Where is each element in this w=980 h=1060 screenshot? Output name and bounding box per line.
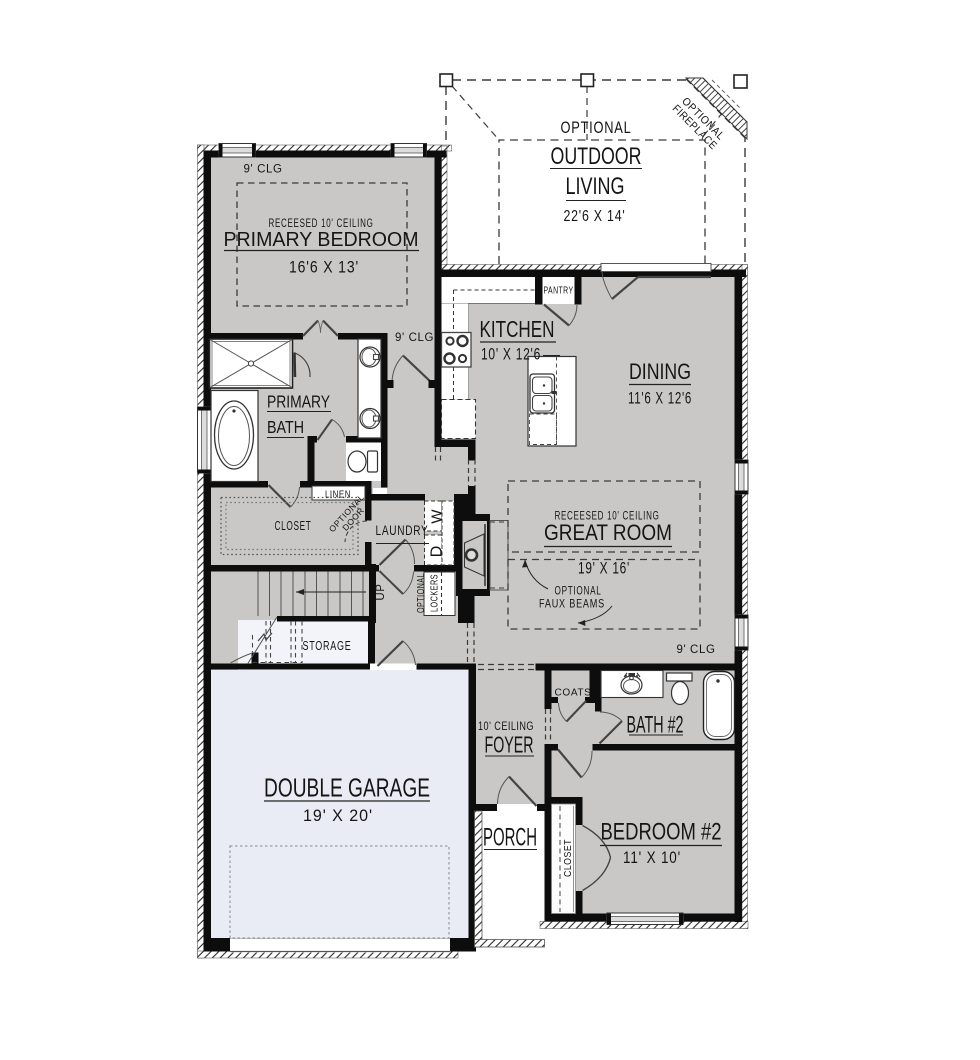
svg-text:DINING: DINING [629, 359, 691, 384]
svg-text:CLOSET: CLOSET [562, 839, 574, 877]
svg-text:LAUNDRY: LAUNDRY [376, 522, 429, 538]
svg-text:LIVING: LIVING [566, 173, 625, 200]
svg-text:OUTDOOR: OUTDOOR [551, 143, 642, 170]
svg-text:9' CLG: 9' CLG [395, 332, 434, 344]
svg-text:PORCH: PORCH [483, 824, 537, 852]
svg-text:OPTIONAL: OPTIONAL [555, 586, 602, 598]
svg-text:11'6 X 12'6: 11'6 X 12'6 [628, 390, 692, 408]
svg-text:CLOSET: CLOSET [275, 519, 312, 533]
svg-text:UP: UP [375, 583, 387, 600]
svg-text:10' X 12'6: 10' X 12'6 [481, 346, 541, 364]
svg-text:PRIMARY BEDROOM: PRIMARY BEDROOM [224, 229, 419, 251]
svg-text:OPTIONAL: OPTIONAL [561, 118, 632, 137]
svg-text:STORAGE: STORAGE [303, 639, 352, 653]
svg-text:OPTIONAL: OPTIONAL [416, 573, 427, 613]
svg-text:PANTRY: PANTRY [544, 286, 574, 297]
svg-text:LINEN: LINEN [325, 490, 351, 501]
svg-text:9' CLG: 9' CLG [244, 164, 283, 176]
svg-text:11' X 10': 11' X 10' [623, 849, 681, 867]
svg-text:KITCHEN: KITCHEN [480, 316, 555, 342]
svg-text:COATS: COATS [555, 688, 592, 699]
svg-text:19' X 20': 19' X 20' [303, 806, 373, 825]
svg-text:W: W [429, 508, 446, 523]
svg-text:16'6 X 13': 16'6 X 13' [289, 259, 359, 277]
svg-text:BATH: BATH [267, 417, 304, 437]
svg-text:19' X 16': 19' X 16' [578, 560, 630, 578]
svg-text:22'6 X 14': 22'6 X 14' [564, 208, 626, 225]
svg-text:GREAT ROOM: GREAT ROOM [544, 520, 672, 545]
svg-text:9' CLG: 9' CLG [676, 644, 715, 656]
svg-text:FAUX BEAMS: FAUX BEAMS [539, 599, 605, 611]
svg-text:FOYER: FOYER [485, 732, 534, 758]
svg-text:BEDROOM #2: BEDROOM #2 [601, 819, 722, 846]
svg-text:D: D [429, 545, 446, 558]
svg-text:DOUBLE GARAGE: DOUBLE GARAGE [264, 773, 430, 803]
svg-text:PRIMARY: PRIMARY [267, 392, 330, 412]
svg-text:LOCKERS: LOCKERS [430, 574, 441, 612]
